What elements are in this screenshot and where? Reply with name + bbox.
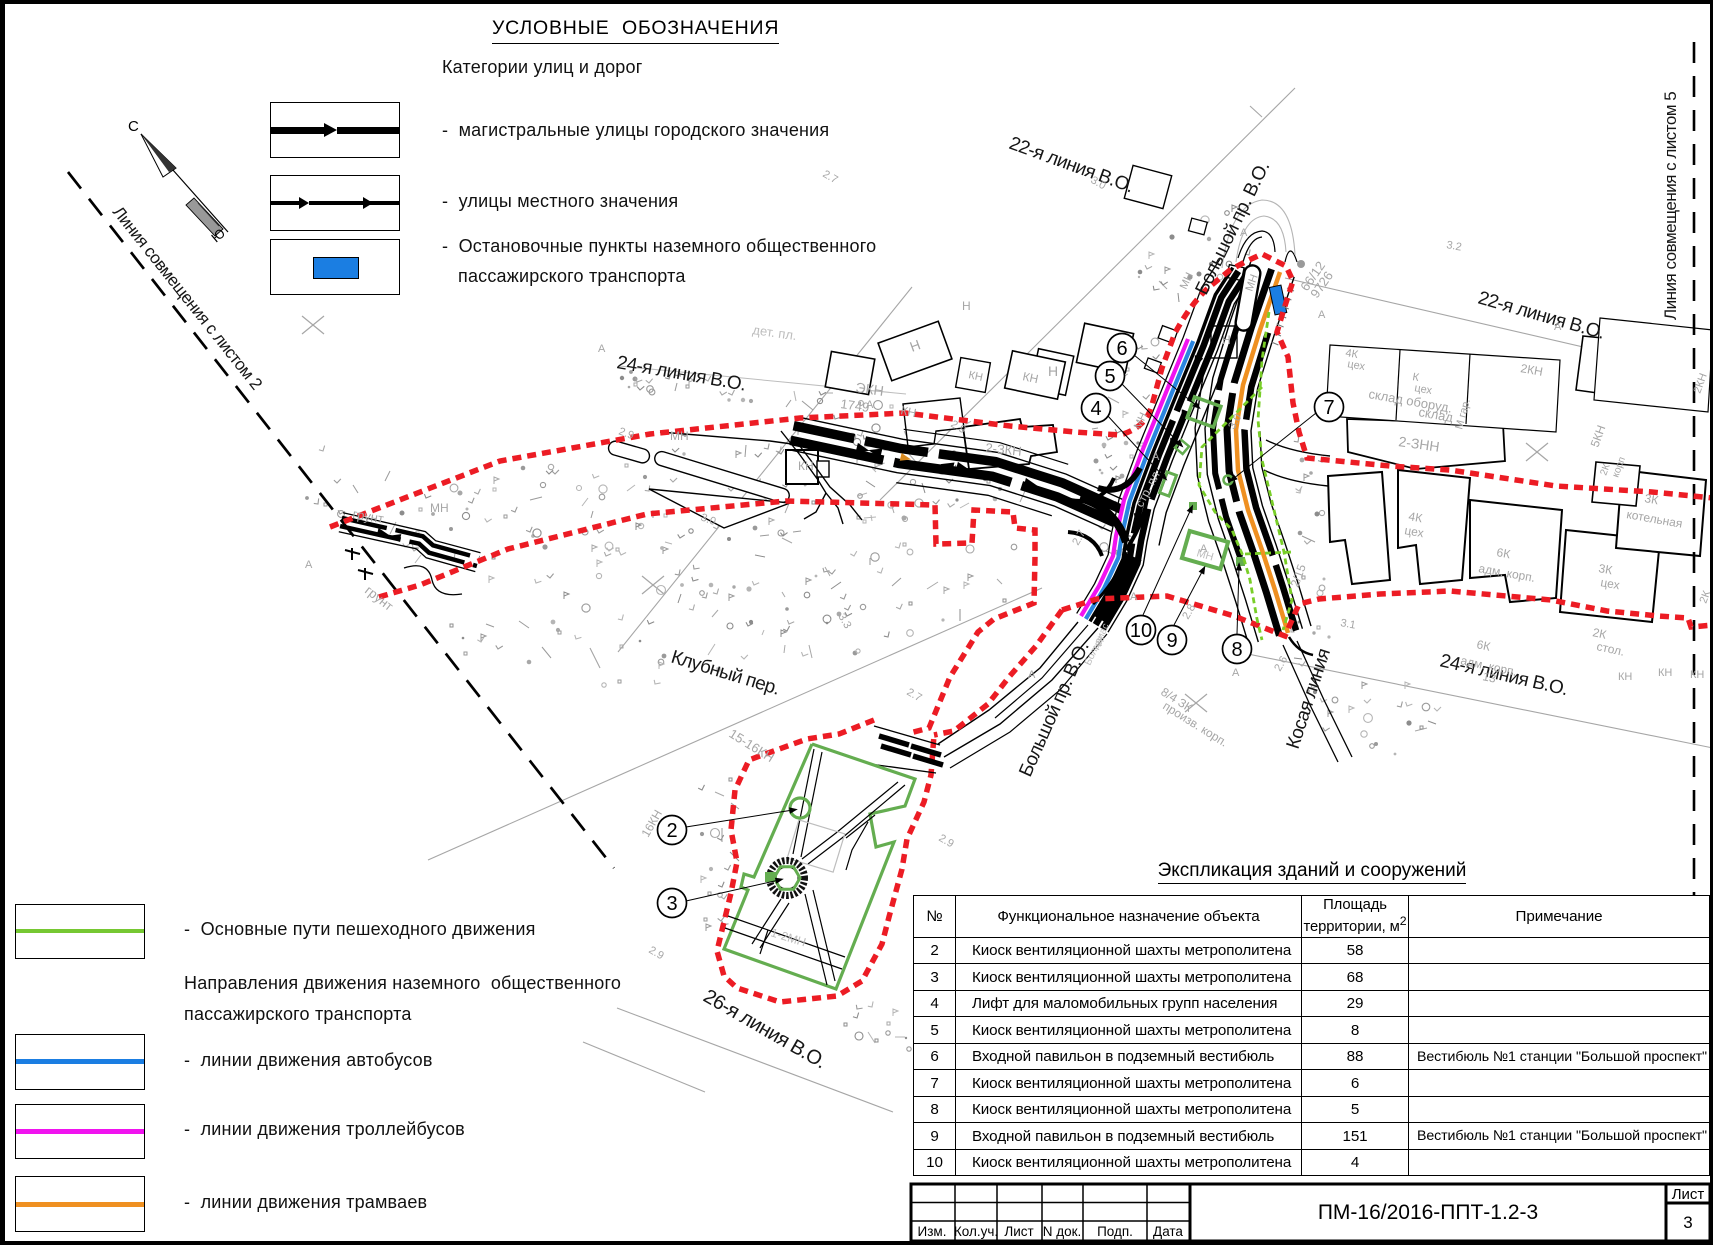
- svg-text:Лист: Лист: [1004, 1224, 1033, 1239]
- svg-text:ПМ-16/2016-ППТ-1.2-3: ПМ-16/2016-ППТ-1.2-3: [1318, 1201, 1538, 1224]
- svg-text:3: 3: [1683, 1213, 1692, 1232]
- svg-text:Изм.: Изм.: [918, 1224, 947, 1239]
- svg-text:Лист: Лист: [1672, 1186, 1705, 1203]
- svg-text:Дата: Дата: [1153, 1224, 1183, 1239]
- svg-text:Подп.: Подп.: [1097, 1224, 1133, 1239]
- svg-text:Кол.уч.: Кол.уч.: [954, 1224, 998, 1239]
- svg-text:N док.: N док.: [1043, 1224, 1082, 1239]
